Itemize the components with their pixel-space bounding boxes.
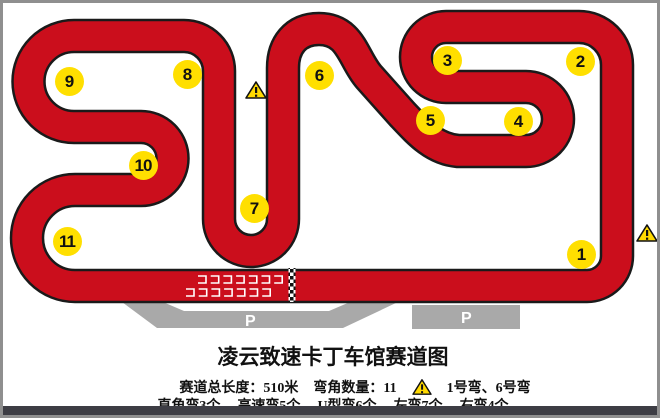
corner-marker-3: 3: [433, 46, 462, 75]
bottom-frame-bar: [3, 406, 660, 415]
karting-track-map: 1 2 3 4 5 6 7 8 9 10 11 P P 凌云致速卡丁车馆赛道图 …: [0, 0, 660, 418]
corner-marker-7: 7: [240, 194, 269, 223]
corner-marker-2: 2: [566, 47, 595, 76]
corner-marker-1: 1: [567, 240, 596, 269]
warning-icon-corner6: [245, 80, 267, 105]
start-finish-line: [289, 268, 296, 302]
map-title: 凌云致速卡丁车馆赛道图: [3, 341, 660, 371]
corner-marker-8: 8: [173, 60, 202, 89]
track-length-stat: 赛道总长度：510米: [179, 377, 298, 397]
corner-marker-9: 9: [55, 67, 84, 96]
stats-line-1: 赛道总长度：510米 弯角数量：11 1号弯、6号弯: [25, 377, 660, 397]
warning-icon-legend: [412, 378, 432, 396]
corner-marker-5: 5: [416, 106, 445, 135]
parking-left-label: P: [245, 314, 256, 330]
parking-right-label: P: [461, 311, 472, 327]
corner-marker-11: 11: [53, 227, 82, 256]
corner-count-stat: 弯角数量：11: [313, 377, 396, 397]
corner-marker-6: 6: [305, 61, 334, 90]
corner-marker-4: 4: [504, 107, 533, 136]
warning-corners-note: 1号弯、6号弯: [447, 377, 531, 397]
corner-marker-10: 10: [129, 151, 158, 180]
warning-icon-corner1: [636, 223, 658, 248]
pitlane-parking-left: [122, 302, 398, 328]
